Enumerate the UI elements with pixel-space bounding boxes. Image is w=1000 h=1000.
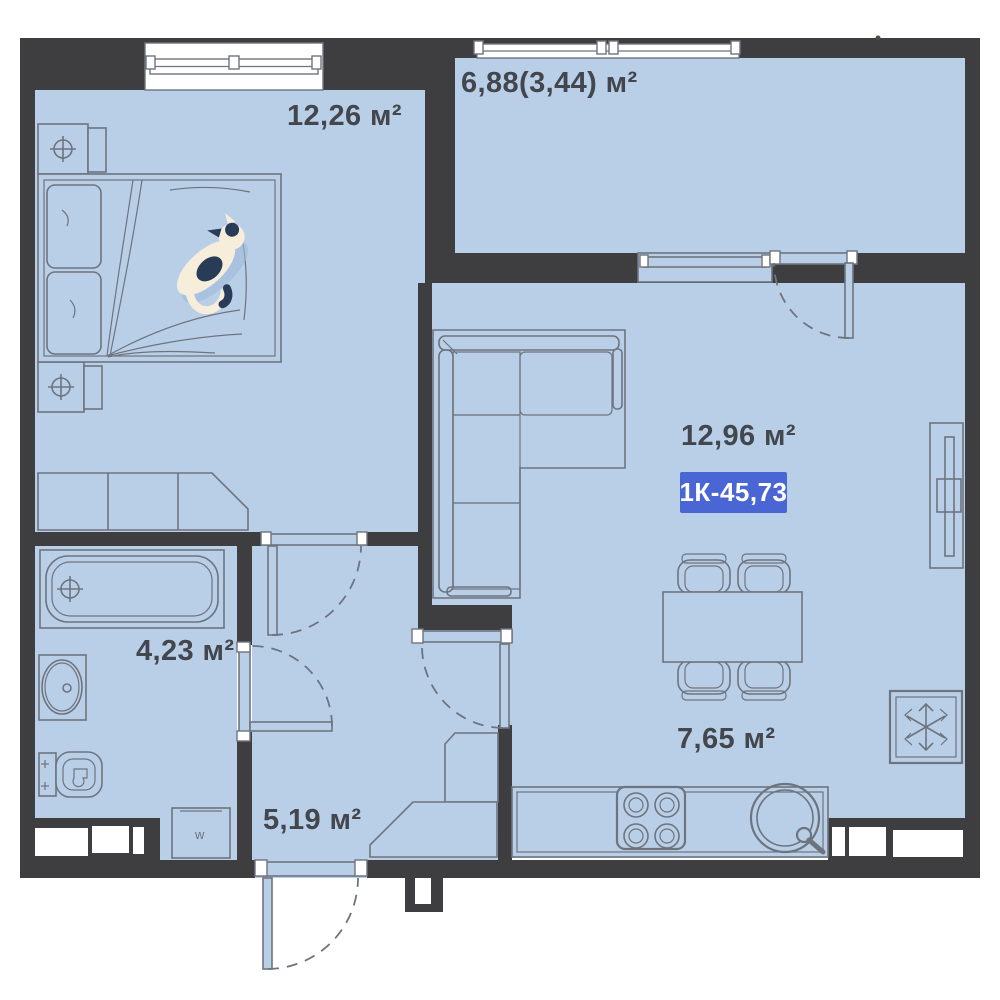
bed bbox=[38, 174, 281, 362]
living-room-area-label: 12,96 м² bbox=[681, 420, 796, 453]
floorplan-drawing: w bbox=[0, 0, 1000, 1000]
refrigerator bbox=[890, 691, 962, 763]
stray-dot bbox=[876, 36, 881, 41]
wardrobe bbox=[38, 473, 248, 530]
bedroom-area-label: 12,26 м² bbox=[287, 100, 402, 133]
unit-badge[interactable]: 1К-45,73 bbox=[680, 472, 787, 513]
bathtub bbox=[40, 550, 224, 628]
bedroom-window bbox=[145, 43, 323, 90]
bathroom-area-label: 4,23 м² bbox=[136, 635, 234, 668]
nightstand-bottom bbox=[38, 362, 102, 412]
washer-mark: w bbox=[194, 827, 205, 842]
washing-machine: w bbox=[172, 808, 230, 858]
balcony-area-label: 6,88(3,44) м² bbox=[461, 67, 638, 100]
living-room-window bbox=[638, 253, 772, 282]
sink bbox=[39, 655, 86, 720]
nightstand-top bbox=[38, 124, 106, 174]
toilet bbox=[39, 752, 102, 797]
hallway-area-label: 5,19 м² bbox=[263, 804, 361, 837]
balcony-window bbox=[474, 41, 740, 58]
stove bbox=[617, 787, 685, 849]
kitchen-area-label: 7,65 м² bbox=[677, 723, 775, 756]
entrance-door bbox=[255, 860, 367, 969]
floorplan-page: w 12,26 м² 6,88(3,44) bbox=[0, 0, 1000, 1000]
radiator bbox=[930, 423, 963, 568]
